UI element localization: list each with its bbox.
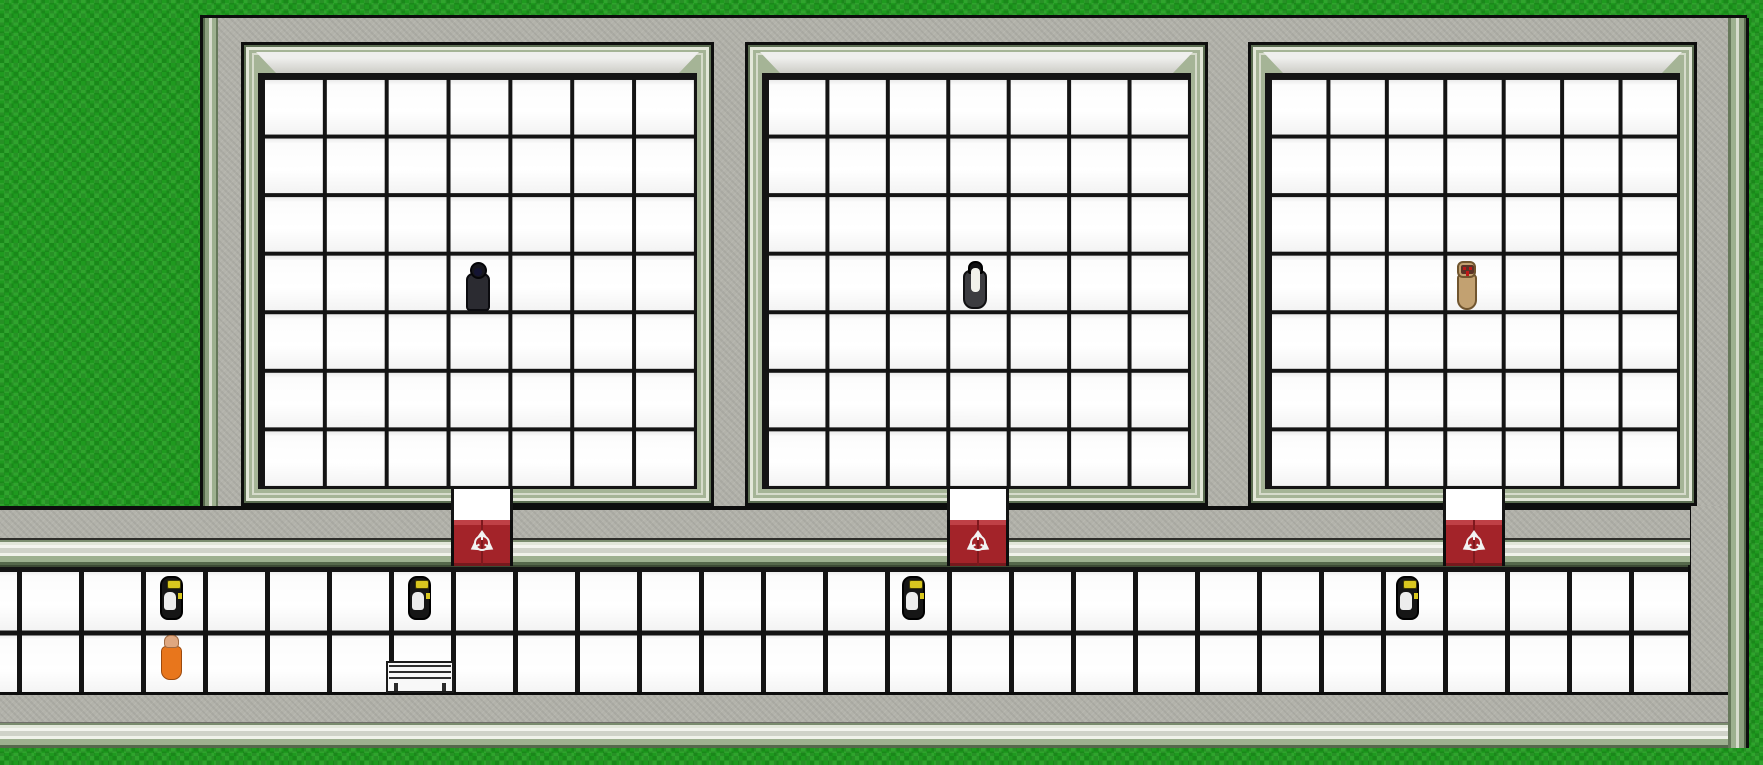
- corridor-floor-tiles[interactable]: [0, 565, 1688, 692]
- vest: [1400, 592, 1412, 610]
- shoulder-patch: [426, 593, 430, 599]
- vest: [412, 592, 424, 610]
- containment-door-3[interactable]: [1443, 520, 1505, 566]
- face-smear: [1466, 271, 1469, 276]
- guard-3[interactable]: [900, 575, 927, 621]
- doorway-gap-2: [947, 489, 1009, 520]
- vest: [164, 592, 176, 610]
- face: [474, 268, 482, 276]
- face: [971, 268, 980, 292]
- building-left-edge-trim: [200, 18, 218, 506]
- eye: [1463, 267, 1466, 270]
- guard-2[interactable]: [406, 575, 433, 621]
- shoulder-patch: [178, 593, 182, 599]
- containment-door-1[interactable]: [451, 520, 513, 566]
- bench[interactable]: [386, 661, 454, 693]
- scp-096-figure[interactable]: [959, 261, 991, 311]
- scp-logo-icon: [962, 527, 994, 559]
- head: [164, 635, 179, 648]
- doorway-gap-1: [451, 489, 513, 520]
- body: [1457, 274, 1477, 310]
- containment-door-2[interactable]: [947, 520, 1009, 566]
- cell-top-bevel: [1263, 52, 1682, 73]
- shoulder-patch: [1414, 593, 1418, 599]
- bench-slats: [389, 665, 451, 682]
- shoulder-patch: [920, 593, 924, 599]
- visor: [909, 580, 923, 589]
- wall-face: [0, 510, 1690, 540]
- scp-049-figure[interactable]: [462, 262, 494, 312]
- visor: [167, 580, 181, 589]
- doorway-gap-3: [1443, 489, 1505, 520]
- wall-face: [0, 695, 1747, 723]
- scp-logo-icon: [1458, 527, 1490, 559]
- eye: [1469, 267, 1472, 270]
- scp-173-statue[interactable]: [1452, 261, 1482, 311]
- visor: [1403, 580, 1417, 589]
- scp-logo-icon: [466, 527, 498, 559]
- class-d-personnel[interactable]: [158, 634, 185, 681]
- corridor-north-wall: [0, 506, 1690, 565]
- wall-trim: [0, 723, 1747, 748]
- guard-1[interactable]: [158, 575, 185, 621]
- bench-leg: [394, 683, 398, 691]
- cell-top-bevel: [256, 52, 699, 73]
- corridor-south-wall: [0, 692, 1747, 748]
- cell-top-bevel: [760, 52, 1193, 73]
- game-viewport: [0, 0, 1763, 765]
- bench-leg: [442, 683, 446, 691]
- guard-4[interactable]: [1394, 575, 1421, 621]
- building-right-edge-trim: [1728, 18, 1749, 748]
- wall-trim: [0, 540, 1690, 565]
- visor: [415, 580, 429, 589]
- jumpsuit: [161, 646, 182, 680]
- vest: [906, 592, 918, 610]
